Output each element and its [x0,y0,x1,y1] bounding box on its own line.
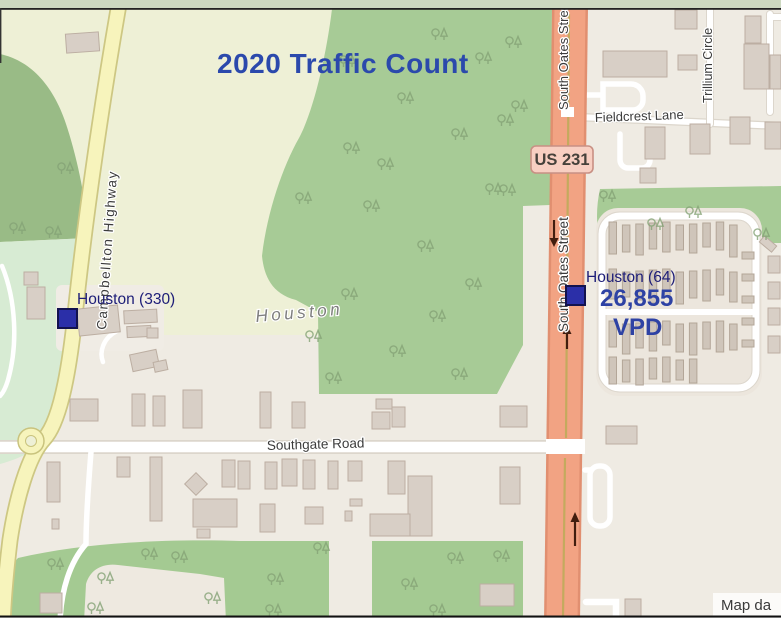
trailer [622,225,630,252]
building [603,51,667,77]
trailer [689,224,697,253]
trailer [730,272,738,302]
building [392,407,405,427]
building [24,272,38,285]
trailer [609,222,617,254]
building [328,461,338,489]
building [675,10,697,29]
building [348,461,362,481]
building [350,499,362,506]
building [117,457,130,477]
building [292,402,305,428]
building [690,124,710,154]
trailer [730,225,738,257]
building [124,309,158,324]
building [730,117,750,144]
page-title: 2020 Traffic Count [217,48,469,79]
map-content: South Oates Street South Oates Street Ca… [0,0,781,622]
building [265,462,277,489]
marker-east[interactable] [566,286,585,305]
trailer [663,357,671,382]
driveway-gap [329,538,372,618]
building [303,460,315,489]
building [770,55,781,89]
trailer [742,296,754,303]
building [70,399,98,421]
building [193,499,237,527]
street-label-fieldcrest: Fieldcrest Lane [595,107,684,125]
border-top [0,8,781,10]
building [480,584,514,606]
building [27,287,45,319]
trailer [742,340,754,347]
trailer [609,357,617,384]
trailer [742,274,754,281]
traffic-volume-unit: VPD [613,314,662,341]
building [153,396,165,426]
building [197,529,210,538]
trailer [649,223,657,249]
trailer [636,224,644,255]
building [372,412,390,429]
trailer [742,252,754,259]
trailer [676,272,684,304]
border-bottom [0,616,781,618]
attribution-text[interactable]: Map da [721,597,772,614]
building [640,168,656,183]
building [222,460,235,487]
building [768,282,780,299]
marker-west[interactable] [58,309,77,328]
trailer [703,223,711,247]
street-label-southgate: Southgate Road [267,435,365,453]
map-attribution: Map da [713,593,781,617]
trailer [742,318,754,325]
building [744,44,769,89]
street-label-south-oates-top: South Oates Street [556,0,571,110]
street-label-trillium: Trillium Circle [701,28,715,103]
building [47,462,60,502]
border-left [0,8,1,63]
building [376,399,392,409]
trailer [689,271,697,298]
building [150,457,162,521]
building [153,360,168,372]
building [678,55,697,70]
building [645,127,665,159]
street-label-south-oates: South Oates Street [556,217,571,332]
trailer [703,322,711,349]
building [40,593,62,613]
trailer [716,269,724,295]
building [282,459,297,486]
trailer [636,359,644,385]
marker-east-label: Houston (64) [586,269,676,286]
building [768,256,780,273]
shield-label: US 231 [534,151,589,169]
building [260,504,275,532]
building [500,467,520,504]
building [305,507,323,524]
building [388,461,405,494]
building [606,426,637,444]
building [260,392,271,428]
building [183,390,202,428]
trailer [676,324,684,352]
building [408,476,432,536]
building [500,406,527,427]
building [52,519,59,529]
trailer [676,360,684,380]
trailer [703,270,711,301]
bottom-margin [0,618,781,622]
building [238,461,250,489]
highway-shield: US 231 [531,146,593,173]
trailer [689,323,697,355]
map-canvas[interactable]: South Oates Street South Oates Street Ca… [0,0,781,622]
trailer [716,321,724,352]
top-strip [0,0,781,8]
building [345,511,352,521]
trailer [649,358,657,379]
marker-west-label: Houston (330) [77,291,175,308]
trailer [716,222,724,250]
building [65,32,99,53]
building [132,394,145,426]
trailer [689,359,697,383]
building [625,599,641,617]
trailer [663,321,671,345]
building [768,308,780,325]
trailer [676,225,684,250]
traffic-count-map-figure: South Oates Street South Oates Street Ca… [0,0,781,622]
roundabout [18,428,44,454]
building [745,16,761,43]
trailer [622,360,630,382]
building [147,328,158,338]
building [765,122,781,149]
traffic-volume-value: 26,855 [600,285,673,312]
building [370,514,410,536]
building [768,336,780,353]
trailer [730,324,738,350]
